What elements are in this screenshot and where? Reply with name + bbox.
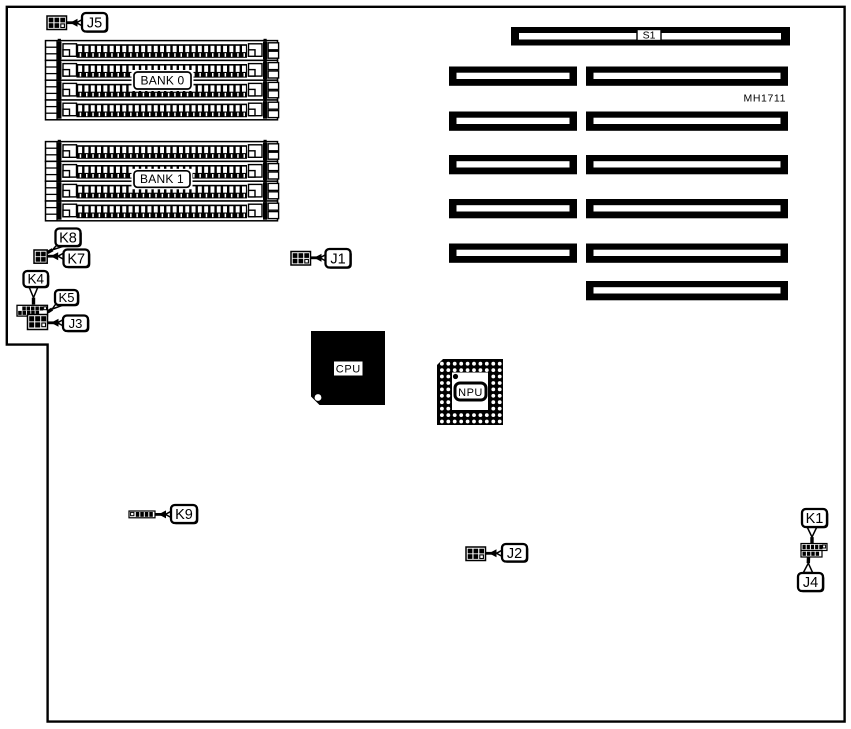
svg-text:J1: J1 (330, 251, 345, 267)
svg-text:BANK 0: BANK 0 (141, 74, 185, 88)
svg-text:BANK 1: BANK 1 (140, 172, 184, 186)
svg-text:K1: K1 (806, 511, 824, 527)
svg-text:K9: K9 (175, 507, 193, 523)
svg-text:K4: K4 (28, 272, 45, 287)
svg-text:CPU: CPU (336, 364, 361, 376)
svg-text:MH1711: MH1711 (744, 93, 787, 105)
svg-text:J2: J2 (507, 546, 522, 562)
svg-text:NPU: NPU (458, 387, 483, 399)
svg-text:S1: S1 (643, 30, 656, 42)
svg-text:J3: J3 (69, 316, 83, 331)
svg-text:K8: K8 (59, 230, 77, 246)
svg-text:J4: J4 (803, 575, 818, 591)
svg-text:K5: K5 (59, 290, 75, 305)
svg-text:K7: K7 (67, 251, 85, 267)
svg-text:J5: J5 (87, 15, 102, 31)
